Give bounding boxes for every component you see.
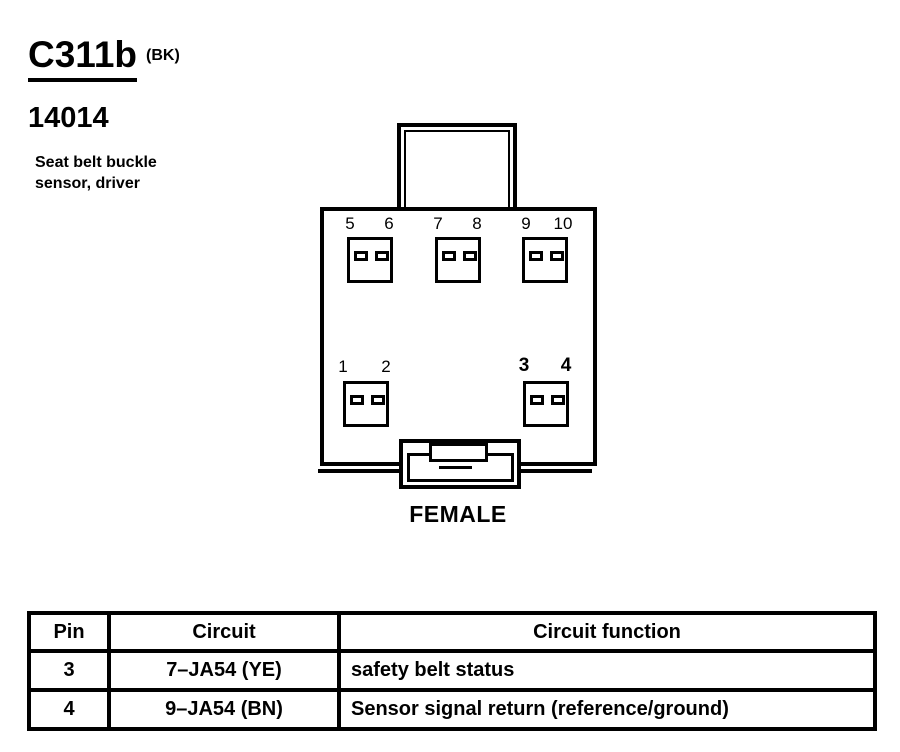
cell-function: safety belt status — [339, 651, 875, 690]
header-circuit: Circuit — [109, 613, 339, 651]
pin-label-7: 7 — [433, 214, 442, 234]
pin-label-2: 2 — [381, 357, 390, 377]
latch-notch — [429, 443, 488, 462]
pin-slot-4 — [551, 395, 565, 405]
pin-cavity-1-2 — [343, 381, 389, 427]
component-description: Seat belt buckle sensor, driver — [35, 152, 167, 194]
table-row: 3 7–JA54 (YE) safety belt status — [29, 651, 875, 690]
pin-cavity-5-6 — [347, 237, 393, 283]
pin-label-8: 8 — [472, 214, 481, 234]
header-circuit-function: Circuit function — [339, 613, 875, 651]
header-pin: Pin — [29, 613, 109, 651]
pinout-table: Pin Circuit Circuit function 3 7–JA54 (Y… — [27, 611, 877, 731]
pin-slot-8 — [463, 251, 477, 261]
cell-circuit: 9–JA54 (BN) — [109, 690, 339, 729]
pin-label-9: 9 — [521, 214, 530, 234]
pin-slot-3 — [530, 395, 544, 405]
cell-pin: 3 — [29, 651, 109, 690]
cell-function: Sensor signal return (reference/ground) — [339, 690, 875, 729]
pin-label-5: 5 — [345, 214, 354, 234]
part-number: 14014 — [28, 104, 109, 133]
table-row: 4 9–JA54 (BN) Sensor signal return (refe… — [29, 690, 875, 729]
mating-tab-inner — [404, 130, 510, 211]
table-header-row: Pin Circuit Circuit function — [29, 613, 875, 651]
pin-cavity-3-4 — [523, 381, 569, 427]
pin-slot-6 — [375, 251, 389, 261]
connector-gender-label: FEMALE — [409, 501, 507, 528]
pin-slot-2 — [371, 395, 385, 405]
connector-id-title: C311b — [28, 36, 137, 82]
cell-circuit: 7–JA54 (YE) — [109, 651, 339, 690]
pin-slot-9 — [529, 251, 543, 261]
pin-label-6: 6 — [384, 214, 393, 234]
pin-cavity-7-8 — [435, 237, 481, 283]
pin-label-3: 3 — [519, 355, 530, 377]
pin-slot-7 — [442, 251, 456, 261]
pin-slot-10 — [550, 251, 564, 261]
pin-slot-5 — [354, 251, 368, 261]
pin-label-1: 1 — [338, 357, 347, 377]
cell-pin: 4 — [29, 690, 109, 729]
pin-label-4: 4 — [561, 355, 572, 377]
document-page: C311b (BK) 14014 Seat belt buckle sensor… — [0, 0, 900, 752]
pin-cavity-9-10 — [522, 237, 568, 283]
latch-line — [439, 466, 472, 469]
connector-color-code: (BK) — [146, 47, 180, 65]
pin-label-10: 10 — [554, 214, 573, 234]
pin-slot-1 — [350, 395, 364, 405]
